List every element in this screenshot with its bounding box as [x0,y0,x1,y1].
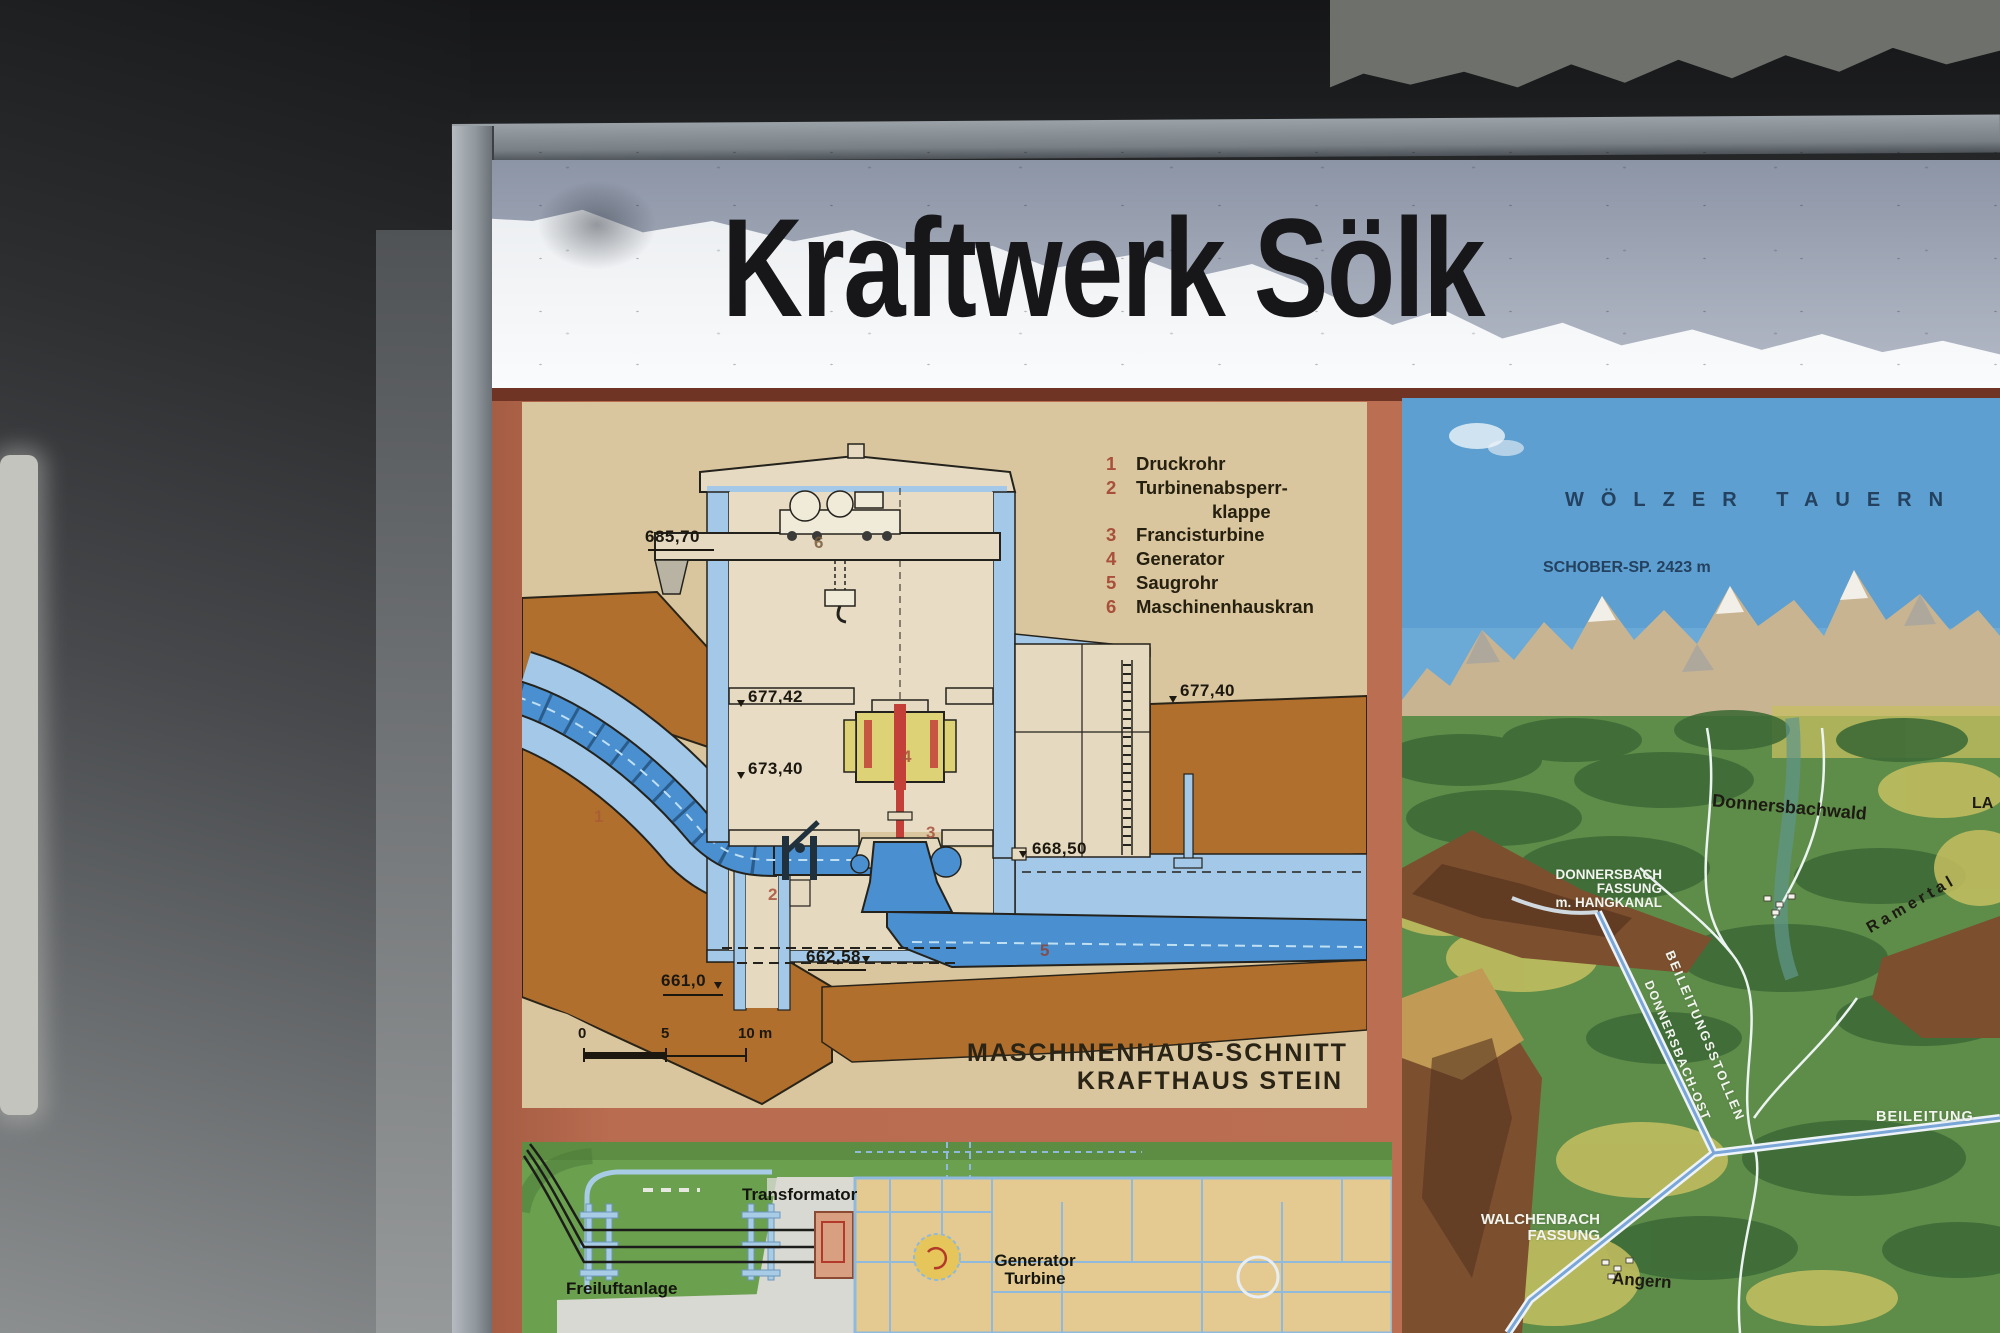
legend-row: 5Saugrohr [1106,571,1366,595]
part-mark-1: 1 [594,808,603,826]
elevation-label-668-50: 668,50 [1032,840,1087,858]
site-label-transformator: Transformator [742,1186,857,1204]
map-label-walchenbach: WALCHENBACH FASSUNG [1448,1212,1600,1244]
legend-row: 2Turbinenabsperr- [1106,476,1366,500]
elevation-marker [1169,696,1177,703]
elevation-label-677-40: 677,40 [1180,682,1235,700]
diagram-legend: 1Druckrohr 2Turbinenabsperr- klappe 3Fra… [1106,452,1366,619]
legend-row: 3Francisturbine [1106,523,1366,547]
elevation-marker [862,956,870,963]
elevation-marker [737,700,745,707]
elevation-label-661-0: 661,0 [661,972,706,990]
scale-zero: 0 [578,1026,586,1042]
elevation-label-673-40: 673,40 [748,760,803,778]
map-label-beileitung: BEILEITUNG [1876,1110,1974,1125]
elevation-line [808,969,866,971]
elevation-marker [714,982,722,989]
sign-title: Kraftwerk Sölk [722,194,1378,341]
elevation-label-662-58: 662,58 [806,948,861,966]
concrete-bright-edge [0,455,38,1115]
map-label-range: WÖLZER TAUERN [1565,490,1960,511]
legend-row: 4Generator [1106,547,1366,571]
legend-row: 1Druckrohr [1106,452,1366,476]
part-mark-3: 3 [926,824,935,842]
legend-row: klappe [1106,500,1366,524]
part-mark-4: 4 [902,748,911,766]
map-panel [1402,398,2000,1333]
part-mark-6: 6 [814,534,823,552]
elevation-line [648,549,714,551]
frame-left-bar [452,126,494,1333]
map-label-angern: Angern [1611,1270,1672,1292]
scale-five: 5 [661,1026,669,1042]
site-plan-drawing [522,1142,1392,1333]
caption-line-2: KRAFTHAUS STEIN [967,1068,1343,1094]
site-plan-panel [522,1142,1392,1333]
caption-line-1: MASCHINENHAUS-SCHNITT [967,1040,1343,1066]
relief-map [1402,398,2000,1333]
map-label-edge: LA [1972,796,1993,813]
sign-smudge [537,180,657,270]
photo-information-board: Kraftwerk Sölk [0,0,2000,1333]
elevation-label-685-70: 685,70 [645,528,700,546]
part-mark-2: 2 [768,886,777,904]
legend-row: 6Maschinenhauskran [1106,595,1366,619]
elevation-marker [737,772,745,779]
site-label-generator-turbine: Generator Turbine [960,1252,1110,1288]
map-label-donnersbach-fassung: DONNERSBACH FASSUNG m. HANGKANAL [1512,868,1662,911]
scale-ten: 10 m [738,1026,772,1042]
diagram-caption: MASCHINENHAUS-SCHNITT KRAFTHAUS STEIN [967,1040,1343,1095]
elevation-label-677-42: 677,42 [748,688,803,706]
map-label-peak: SCHOBER-SP. 2423 m [1543,560,1711,577]
elevation-line [663,994,723,996]
site-label-freiluftanlage: Freiluftanlage [566,1280,677,1298]
elevation-marker [1019,851,1027,858]
part-mark-5: 5 [1040,942,1049,960]
